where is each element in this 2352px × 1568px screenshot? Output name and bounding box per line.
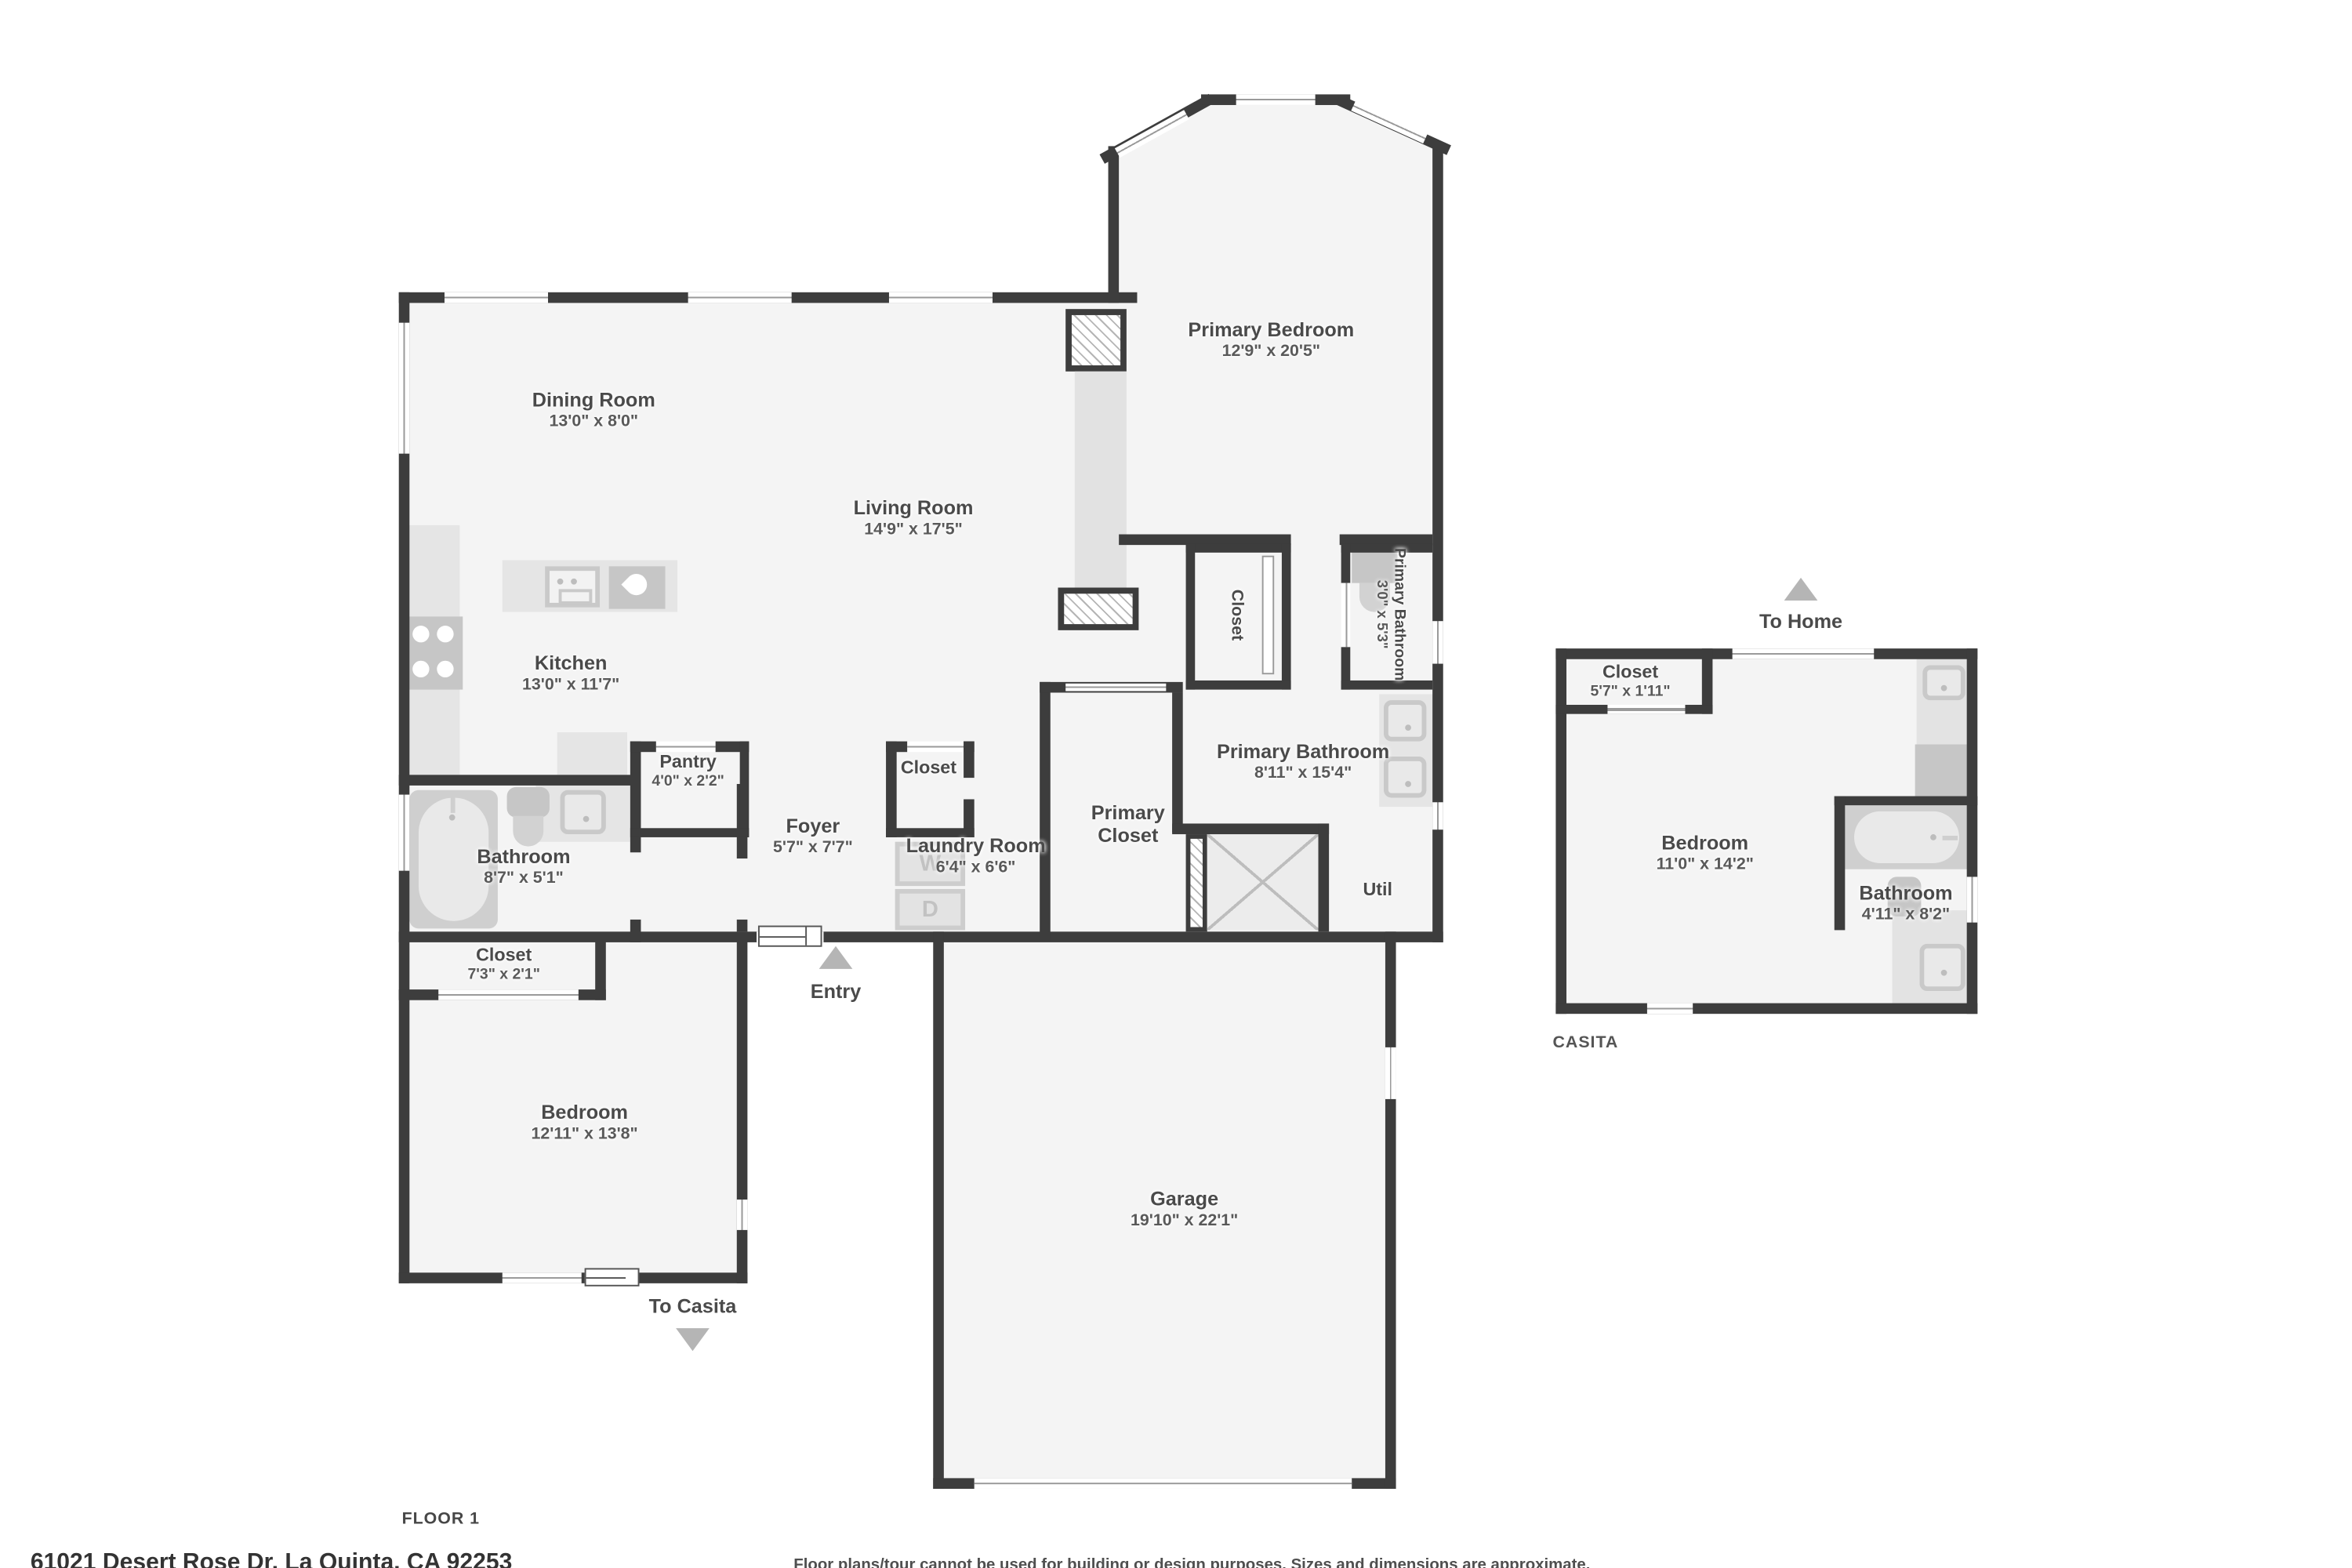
window — [688, 292, 792, 303]
door-opening — [737, 858, 748, 920]
room-label-bathroom: Bathroom 8'7" x 5'1" — [477, 846, 570, 889]
room-dims: 6'4" x 6'6" — [936, 858, 1016, 879]
to-casita-arrow-icon — [676, 1328, 710, 1351]
address: 61021 Desert Rose Dr, La Quinta, CA 9225… — [31, 1550, 512, 1568]
entry-label: Entry — [811, 979, 862, 1002]
chase-wall — [1075, 372, 1127, 588]
room-label-primary-bed-closet: Closet — [1226, 590, 1246, 641]
window — [1432, 621, 1443, 663]
wall — [1172, 823, 1329, 834]
room-label-foyer-closet: Closet — [901, 758, 956, 779]
room-dims: 8'11" x 15'4" — [1254, 764, 1352, 784]
window — [438, 989, 579, 1000]
floor-label: FLOOR 1 — [402, 1510, 480, 1528]
shower-icon — [1207, 834, 1319, 930]
wall — [630, 828, 749, 837]
wall — [595, 941, 606, 1000]
room-name: Closet — [1602, 662, 1658, 684]
kettle-icon — [621, 569, 651, 599]
room-label-primary-bathroom: Primary Bathroom 8'11" x 15'4" — [1217, 741, 1389, 784]
window — [399, 323, 410, 454]
wall — [1967, 648, 1978, 1014]
door-opening — [964, 778, 975, 799]
room-name: Pantry — [659, 752, 717, 773]
room-label-casita-closet: Closet 5'7" x 1'11" — [1590, 662, 1670, 702]
wall — [1385, 931, 1396, 1489]
room-label-hall-closet: Closet 7'3" x 2'1" — [467, 946, 539, 985]
fireplace-hatch — [1058, 587, 1138, 630]
room-dims: 13'0" x 8'0" — [549, 412, 638, 433]
wall — [399, 775, 640, 786]
wall — [630, 742, 656, 753]
room-label-living: Living Room 14'9" x 17'5" — [854, 498, 974, 541]
burner-icon — [437, 661, 453, 677]
wall — [737, 920, 748, 932]
door-leaf-icon — [585, 1268, 640, 1286]
sink-icon — [1919, 944, 1965, 991]
room-name: Primary Bathroom — [1217, 741, 1389, 764]
window — [1385, 1047, 1396, 1099]
closet-slider-opening — [1065, 684, 1166, 691]
to-casita-label: To Casita — [649, 1294, 737, 1317]
room-name: Closet — [901, 758, 956, 779]
room-label-casita-bedroom: Bedroom 11'0" x 14'2" — [1657, 833, 1754, 876]
stove-icon — [609, 566, 666, 608]
room-name: Util — [1363, 880, 1392, 901]
wall — [1555, 1004, 1977, 1014]
burner-icon — [437, 626, 453, 642]
wall — [1835, 797, 1978, 806]
kitchen-sink-icon — [545, 566, 600, 607]
window — [737, 1200, 748, 1230]
wall — [1282, 543, 1291, 689]
window — [445, 292, 548, 303]
wall — [1341, 543, 1351, 583]
wall — [740, 742, 750, 837]
room-name: Primary Bedroom — [1188, 320, 1354, 343]
wall — [737, 931, 748, 1283]
room-label-bedroom: Bedroom 12'11" x 13'8" — [532, 1102, 638, 1145]
wall — [1835, 797, 1846, 931]
entry-arrow-icon — [819, 946, 853, 969]
room-name: Bedroom — [541, 1102, 628, 1125]
room-name: Living Room — [854, 498, 974, 521]
wall — [1186, 543, 1291, 553]
room-name: Dining Room — [532, 390, 655, 412]
wall — [1555, 648, 1566, 1014]
toilet-bowl-icon — [513, 816, 543, 847]
room-name: Bedroom — [1661, 833, 1748, 855]
closet-slider-opening — [1607, 705, 1685, 714]
room-name: Bathroom — [1859, 883, 1952, 906]
room-dims: 8'7" x 5'1" — [484, 869, 564, 889]
window — [1236, 94, 1316, 105]
room-label-kitchen: Kitchen 13'0" x 11'7" — [522, 653, 619, 696]
dryer-letter: D — [922, 897, 938, 923]
casita-appliance-icon — [1915, 744, 1969, 796]
casita-title: CASITA — [1553, 1033, 1619, 1051]
bathtub-icon — [1854, 811, 1959, 863]
floorplan-page: W D — [0, 0, 2352, 1568]
room-name: Kitchen — [535, 653, 608, 676]
window — [1647, 1004, 1693, 1014]
bathroom-sink-icon — [561, 790, 606, 834]
room-name: Garage — [1150, 1189, 1218, 1211]
garage-door-line — [975, 1483, 1352, 1484]
room-dims: 13'0" x 11'7" — [522, 676, 619, 696]
window — [1432, 802, 1443, 829]
disclaimer: Floor plans/tour cannot be used for buil… — [793, 1555, 1590, 1568]
room-label-util: Util — [1363, 880, 1392, 901]
room-dims: 7'3" x 2'1" — [467, 967, 539, 985]
room-dims: 12'11" x 13'8" — [532, 1125, 638, 1145]
room-name: Closet — [1226, 590, 1246, 641]
room-dims: 14'9" x 17'5" — [864, 521, 962, 541]
entry-door-icon — [758, 926, 822, 947]
fireplace-hatch — [1065, 309, 1127, 372]
wall — [630, 920, 641, 942]
room-dims: 3'0" x 5'3" — [1373, 548, 1390, 682]
room-label-primary-bath-small: Primary Bathroom 3'0" x 5'3" — [1373, 548, 1407, 682]
to-home-label: To Home — [1759, 610, 1842, 633]
room-name: Laundry Room — [906, 836, 1046, 858]
room-dims: 5'7" x 7'7" — [773, 839, 853, 859]
room-dims: 4'0" x 2'2" — [652, 773, 724, 791]
floorplan-canvas: W D — [0, 0, 2352, 1568]
wall — [1040, 682, 1051, 941]
wall — [964, 742, 975, 779]
room-dims: 19'10" x 22'1" — [1131, 1211, 1238, 1232]
wall — [886, 742, 897, 837]
pocket-door-hatch — [1186, 834, 1207, 931]
room-name: Primary Closet — [1072, 802, 1185, 848]
dryer-icon: D — [895, 889, 965, 930]
wall — [1186, 681, 1291, 690]
room-label-pantry: Pantry 4'0" x 2'2" — [652, 752, 724, 791]
window — [1341, 583, 1351, 648]
wall — [399, 931, 1443, 942]
closet-slider-door — [1262, 556, 1275, 674]
window — [503, 1272, 582, 1283]
room-label-casita-bathroom: Bathroom 4'11" x 8'2" — [1859, 883, 1952, 926]
room-dims: 11'0" x 14'2" — [1657, 855, 1754, 876]
room-name: Bathroom — [477, 846, 570, 869]
sink-icon — [1384, 757, 1426, 797]
room-name: Foyer — [786, 816, 840, 839]
room-dims: 4'11" x 8'2" — [1862, 906, 1950, 926]
window — [889, 292, 993, 303]
room-dims: 5'7" x 1'11" — [1590, 684, 1670, 702]
wall — [1109, 146, 1120, 303]
wall — [933, 931, 944, 1489]
window — [1967, 877, 1978, 922]
room-label-garage: Garage 19'10" x 22'1" — [1131, 1189, 1238, 1232]
cooktop-icon — [405, 616, 463, 689]
door-opening — [630, 852, 641, 919]
room-dims: 12'9" x 20'5" — [1222, 343, 1320, 363]
room-name: Closet — [476, 946, 532, 967]
to-home-arrow-icon — [1784, 578, 1818, 601]
burner-icon — [412, 661, 429, 677]
toilet-tank-icon — [507, 787, 550, 818]
wall — [1186, 543, 1196, 689]
sink-icon — [1384, 700, 1426, 741]
room-name: Primary Bathroom — [1390, 548, 1407, 682]
room-label-primary-closet: Primary Closet — [1072, 802, 1185, 848]
sink-icon — [1922, 666, 1965, 701]
room-label-foyer: Foyer 5'7" x 7'7" — [773, 816, 853, 859]
room-label-laundry: Laundry Room 6'4" x 6'6" — [906, 836, 1046, 879]
window — [907, 742, 964, 753]
room-label-dining: Dining Room 13'0" x 8'0" — [532, 390, 655, 433]
window — [399, 795, 410, 871]
burner-icon — [412, 626, 429, 642]
wall — [1319, 823, 1330, 931]
room-label-primary-bedroom: Primary Bedroom 12'9" x 20'5" — [1188, 320, 1354, 363]
casita-entry-opening — [1733, 648, 1875, 659]
